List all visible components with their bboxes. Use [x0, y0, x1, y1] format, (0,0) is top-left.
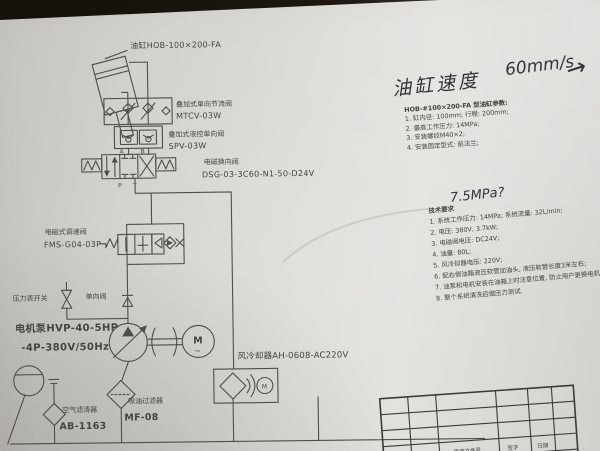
throttle-module-name: 叠加式单向节流阀	[176, 99, 232, 109]
line-port-a	[129, 62, 148, 98]
air-filter-name: 空气滤清器	[62, 405, 97, 414]
motor-pump-label-2: -4P-380V/50Hz	[21, 342, 109, 354]
photo-of-hydraulic-schematic: 油缸HOB-100×200-FA 叠加式单向节流阀 MTCV-03W	[0, 0, 600, 451]
tank-line	[11, 437, 485, 445]
label-leader-line	[105, 50, 127, 58]
pilot-check-module-name: 叠加式液控单向阀	[168, 129, 224, 139]
pump-pressure-line	[127, 264, 128, 323]
tech-requirements-block: 技术要求 1. 系统工作压力: 14MPa; 系统流量: 32L/min; 2.…	[428, 188, 600, 305]
title-block-col-3: 更改文件号	[453, 446, 481, 451]
gauge-switch-label: 压力表开关	[13, 294, 48, 303]
air-filter-model: AB-1163	[59, 421, 106, 433]
throttle-module-model: MTCV-03W	[176, 111, 221, 121]
paper-crease	[283, 209, 428, 262]
throttle-check-module-symbol	[104, 98, 172, 125]
check-valve-label: 单向阀	[86, 292, 107, 301]
pump-motor-letter: M	[193, 335, 203, 346]
suction-filter-model: MF-08	[124, 412, 159, 423]
motor-symbol: M ~	[147, 325, 214, 358]
pilot-check-module-model: SPV-03W	[168, 141, 206, 151]
line-port-b	[122, 92, 128, 98]
title-block-col-5: 日期	[537, 442, 549, 450]
title-block-table: 标记 处数 更改文件号 签字 日期	[380, 385, 578, 451]
directional-valve-symbol	[82, 154, 176, 179]
drain-line	[318, 397, 319, 440]
pump-motor-ac-symbol: ~	[194, 346, 201, 355]
motor-pump-label-1: 电机泵HVP-40-5HP	[15, 321, 119, 335]
flow-valve-symbol	[100, 224, 185, 265]
level-gauge-symbol	[7, 366, 45, 445]
title-block-col-4: 签字	[507, 443, 519, 451]
flow-valve-name: 电磁式调速阀	[45, 227, 87, 237]
air-cooler-symbol: M	[214, 368, 279, 441]
cooler-motor-letter: M	[262, 383, 267, 390]
tank-return-line	[135, 177, 234, 370]
cylinder-label: 油缸HOB-100×200-FA	[130, 39, 221, 50]
flow-valve-model: FMS-G04-03P	[44, 240, 101, 250]
directional-valve-name: 电磁换向阀	[204, 157, 239, 166]
cooler-label: 风冷却器AH-0608-AC220V	[237, 349, 348, 362]
suction-filter-name: 吸油过滤器	[128, 396, 163, 405]
port-p-label: P	[118, 182, 122, 189]
directional-valve-model: DSG-03-3C60-N1-50-D24V	[202, 169, 315, 180]
